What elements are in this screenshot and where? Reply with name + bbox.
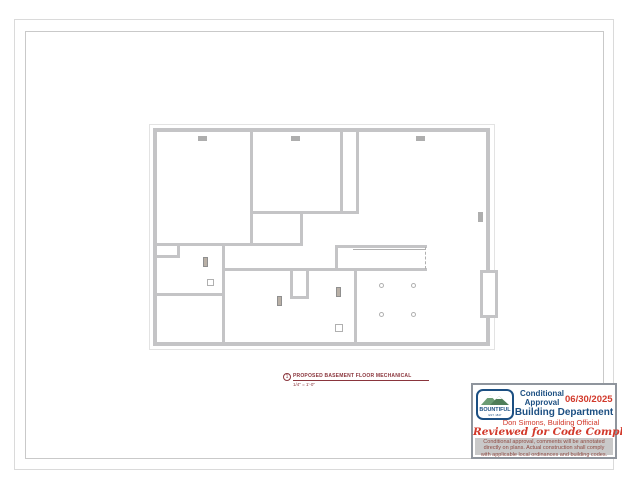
egress-window-well: [480, 270, 498, 318]
wall: [290, 296, 309, 299]
stamp-status-line2: Approval: [517, 398, 567, 407]
callout-text: PROPOSED BASEMENT FLOOR MECHANICAL 1/4" …: [293, 373, 429, 387]
wall: [300, 213, 303, 245]
bountiful-city-logo-icon: BOUNTIFUL EST. 1847: [476, 389, 514, 420]
mechanical-fixture: [277, 296, 282, 306]
floor-drain: [207, 279, 214, 286]
support-post: [379, 312, 384, 317]
wall: [153, 128, 157, 346]
support-post: [379, 283, 384, 288]
stair-break-line: [425, 247, 426, 269]
vent-register: [291, 136, 300, 141]
plan-outline: [149, 124, 495, 350]
floor-drain: [335, 324, 343, 332]
wall: [306, 270, 309, 299]
wall: [155, 293, 224, 296]
plan-scale: 1/4" = 1'-0": [293, 382, 429, 387]
wall: [356, 130, 359, 213]
vent-register: [416, 136, 425, 141]
approval-stamp: BOUNTIFUL EST. 1847 Conditional Approval…: [471, 383, 617, 459]
support-post: [411, 312, 416, 317]
mechanical-fixture: [336, 287, 341, 297]
wall: [340, 130, 343, 213]
stamp-disclaimer: Conditional approval, comments will be a…: [475, 438, 613, 455]
stamp-reviewed-line: Reviewed for Code Compliance: [473, 426, 615, 438]
plan-title-callout: 1 PROPOSED BASEMENT FLOOR MECHANICAL 1/4…: [283, 373, 429, 387]
stamp-status: Conditional Approval: [517, 389, 567, 407]
vent-register: [478, 212, 483, 222]
mechanical-fixture: [203, 257, 208, 267]
wall: [354, 270, 357, 344]
wall: [153, 128, 490, 132]
wall: [222, 268, 427, 271]
stamp-department: Building Department: [513, 407, 615, 418]
wall: [177, 245, 180, 257]
stamp-status-line1: Conditional: [517, 389, 567, 398]
wall: [290, 270, 293, 299]
callout-number: 1: [283, 373, 291, 381]
wall: [335, 247, 338, 270]
support-post: [411, 283, 416, 288]
stamp-date: 06/30/2025: [565, 394, 613, 405]
wall: [153, 342, 490, 346]
plan-title: PROPOSED BASEMENT FLOOR MECHANICAL: [293, 373, 429, 381]
logo-est-text: EST. 1847: [489, 413, 502, 417]
wall: [250, 130, 253, 245]
wall: [335, 245, 427, 248]
stair-rail: [353, 249, 425, 250]
vent-register: [198, 136, 207, 141]
